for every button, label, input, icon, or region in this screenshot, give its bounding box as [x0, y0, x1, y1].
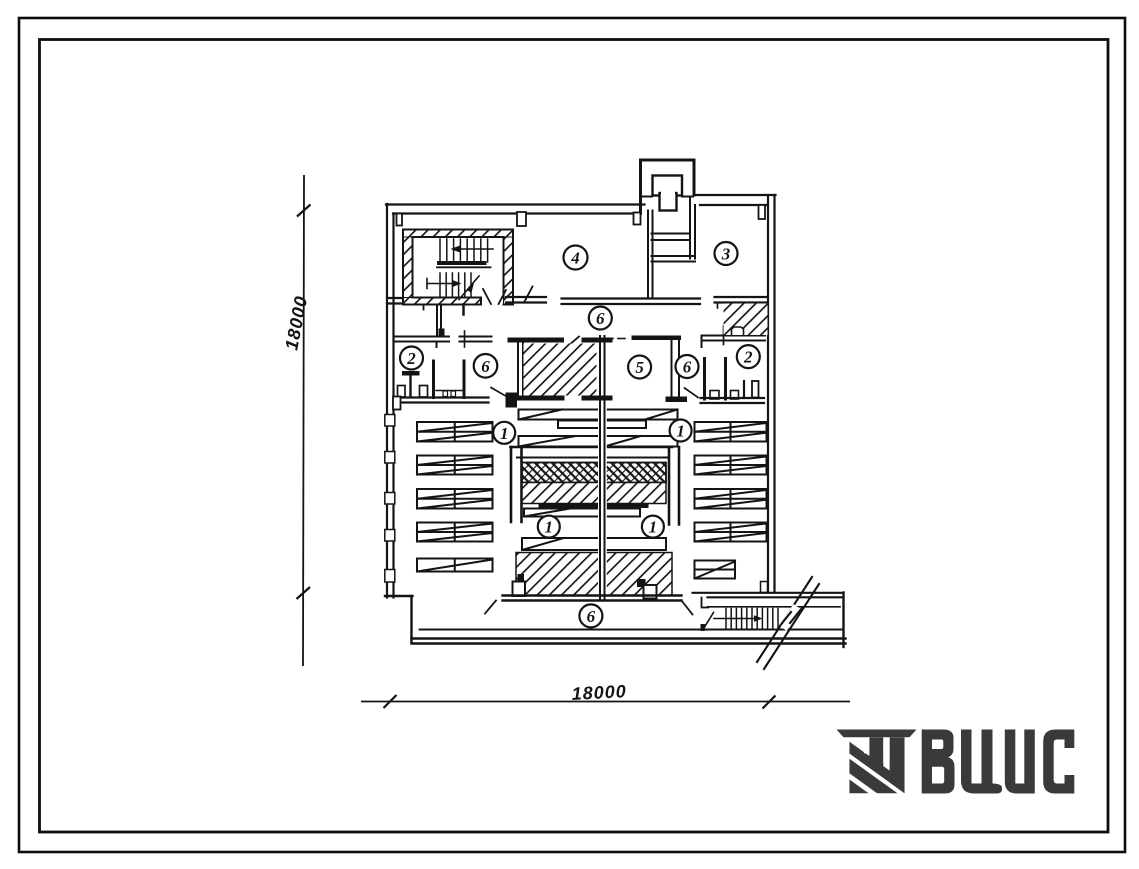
svg-text:6: 6: [587, 607, 596, 626]
svg-text:6: 6: [596, 309, 605, 328]
svg-text:4: 4: [570, 249, 580, 268]
svg-text:1: 1: [649, 518, 658, 537]
svg-text:3: 3: [721, 245, 731, 264]
svg-text:5: 5: [635, 358, 644, 377]
svg-text:1: 1: [500, 424, 509, 443]
svg-text:2: 2: [743, 348, 753, 367]
svg-text:1: 1: [545, 518, 554, 537]
svg-text:6: 6: [683, 358, 692, 377]
svg-text:18000: 18000: [571, 681, 627, 704]
svg-text:1: 1: [676, 422, 685, 441]
svg-text:2: 2: [406, 349, 416, 368]
svg-text:6: 6: [481, 357, 490, 376]
